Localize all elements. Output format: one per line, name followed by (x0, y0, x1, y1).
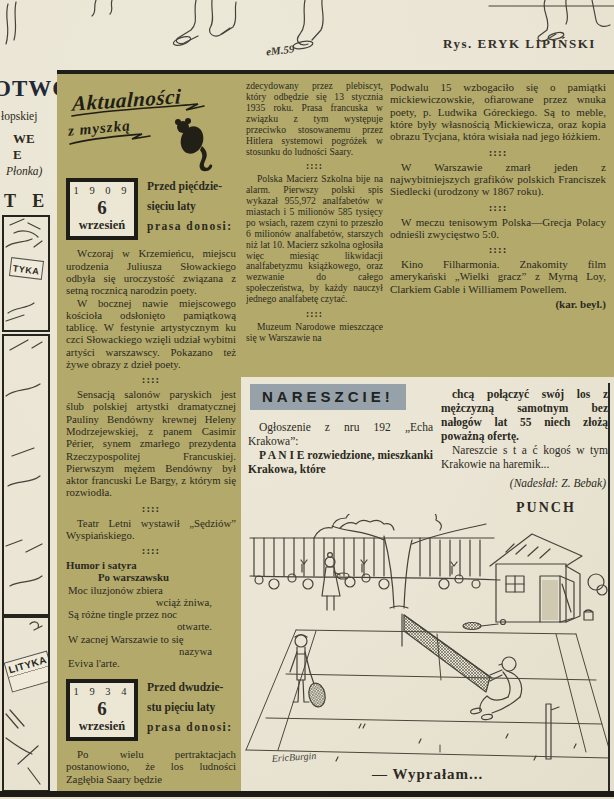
margin-fragment-text: Płonka) (6, 165, 42, 177)
column-right: Podwalu 15 wzbogaciło się o pamiątki mic… (390, 81, 606, 375)
separator: :::: (66, 545, 236, 556)
text-line: W zacnej Warszawie to się (66, 633, 236, 645)
right-column-rule (608, 383, 610, 791)
text-line: Po warszawsku (66, 571, 236, 583)
margin-comic-panel: TYKA (2, 215, 50, 332)
text-line: Nareszcie s t a ć kogoś w tym Krakowie n… (441, 443, 608, 471)
separator: :::: (246, 161, 383, 171)
date-year: 1 9 0 9 (71, 185, 133, 197)
date-year: 1 9 3 4 (71, 686, 133, 698)
separator: :::: (390, 244, 606, 255)
text-line: chcą połączyć swój los z mężczyzną samot… (441, 387, 608, 443)
text-line: P A N I E rozwiedzione, mieszkanki Krako… (248, 448, 433, 476)
margin-comic-sign: TYKA (9, 257, 44, 280)
intro-line: Przed pięćdzie- (147, 180, 233, 193)
nareszcie-title: NARESZCIE! (250, 384, 406, 410)
margin-fragment-text: łopskiej (1, 110, 37, 122)
nareszcie-left-items: Ogłoszenie z nru 192 „Echa Krakowa”:P A … (248, 420, 433, 476)
intro-line: prasa donosi: (147, 220, 233, 233)
separator: :::: (390, 147, 606, 158)
text-line: W bocznej nawie miejscowego kościoła ods… (66, 297, 236, 371)
illustration-credit: Rys. ERYK LIPIŃSKI (443, 36, 596, 52)
date-box-1934: 1 9 3 4 6 wrzesień (66, 679, 138, 741)
date-day: 6 (71, 198, 133, 217)
text-line: Ogłoszenie z nru 192 „Echa Krakowa”: (248, 420, 433, 448)
intro-line: prasa donosi: (147, 721, 233, 734)
intro-line: Przed dwudzie- (147, 681, 233, 694)
date-day: 6 (71, 699, 133, 718)
dateline-1909: 1 9 0 9 6 wrzesień Przed pięćdzie- sięci… (66, 178, 236, 240)
text-line: W Warszawie zmarł jeden z najwybitniejsz… (390, 161, 606, 198)
margin-fragment-text: WE (13, 131, 35, 147)
text-line: Sensacją salonów paryskich jest ślub pol… (66, 388, 236, 499)
intro-line: sięciu laty (147, 200, 233, 213)
aktualnosci-items-1934: Po wielu pertraktacjach postanowiono, że… (66, 748, 236, 785)
date-month: wrzesień (71, 719, 133, 733)
text-line: Kino Filharmonia. Znakomity film ameryka… (390, 258, 606, 295)
tennis-cartoon-illustration: EricBurgin (244, 514, 610, 764)
intro-line: stu pięciu laty (147, 701, 233, 714)
text-line: Humor i satyra (66, 559, 236, 571)
separator: :::: (246, 309, 383, 319)
text-line: Po wielu pertraktacjach postanowiono, że… (66, 748, 236, 785)
date-month: wrzesień (71, 218, 133, 232)
text-line: Eviva l'arte. (66, 657, 236, 669)
separator: :::: (390, 202, 606, 213)
separator: :::: (66, 374, 236, 385)
top-cartoon-fragment-illustration (0, 0, 614, 68)
nareszcie-section-right: chcą połączyć swój los z mężczyzną samot… (441, 387, 608, 490)
column-aktualnosci: Aktualności z myszką 1 9 0 9 6 wrzesień … (66, 82, 236, 790)
text-line: (kar. beyl.) (390, 298, 606, 310)
dateline-1934: 1 9 3 4 6 wrzesień Przed dwudzie- stu pi… (66, 679, 236, 741)
text-line: Teatr Letni wystawił „Sędziów” Wyspiańsk… (66, 517, 236, 542)
date-box-1909: 1 9 0 9 6 wrzesień (66, 178, 138, 240)
aktualnosci-items-1909: Wczoraj w Krzemieńcu, miejscu urodzenia … (66, 247, 236, 669)
mouse-icon (170, 118, 216, 174)
dateline-intro: Przed dwudzie- stu pięciu laty prasa don… (147, 679, 233, 741)
text-line: Moc iluzjonów zbiera (66, 584, 236, 596)
cartoon-caption: — Wyprałam... (372, 766, 483, 783)
separator: :::: (66, 503, 236, 514)
text-line: Wczoraj w Krzemieńcu, miejscu urodzenia … (66, 247, 236, 296)
margin-comic-panel: LITYKA (2, 616, 50, 792)
cartoonist-signature-punch: EricBurgin (270, 750, 316, 764)
nareszcie-section-left: NARESZCIE! Ogłoszenie z nru 192 „Echa Kr… (248, 384, 433, 476)
text-line: Muzeum Narodowe mieszczące się w Warszaw… (246, 322, 383, 344)
text-line: Są różne tingle przez noc (66, 608, 236, 620)
dateline-intro: Przed pięćdzie- sięciu laty prasa donosi… (147, 178, 233, 240)
bottom-divider-rule (0, 791, 614, 797)
margin-fragment-text: E (13, 147, 22, 163)
text-line: otwarte. (66, 620, 236, 632)
newspaper-page: eM.59 Rys. ERYK LIPIŃSKI OTWÓR łopskiej … (0, 0, 614, 799)
aktualnosci-logo: Aktualności z myszką (66, 82, 236, 174)
text-line: zdecydowany przez plebiscyt, który odbęd… (246, 81, 383, 157)
text-line: wciąż żniwa, (66, 596, 236, 608)
text-line: W meczu tenisowym Polska—Grecja Polacy o… (390, 216, 606, 241)
text-line: nazywa (66, 645, 236, 657)
text-line: Podwalu 15 wzbogaciło się o pamiątki mic… (390, 81, 606, 143)
margin-comic-panel (2, 334, 50, 616)
text-line: Polska Macierz Szkolna bije na alarm. Pi… (246, 174, 383, 305)
column-middle: zdecydowany przez plebiscyt, który odbęd… (246, 81, 383, 375)
text-line: (Nadesłał: Z. Bebak) (441, 476, 608, 490)
